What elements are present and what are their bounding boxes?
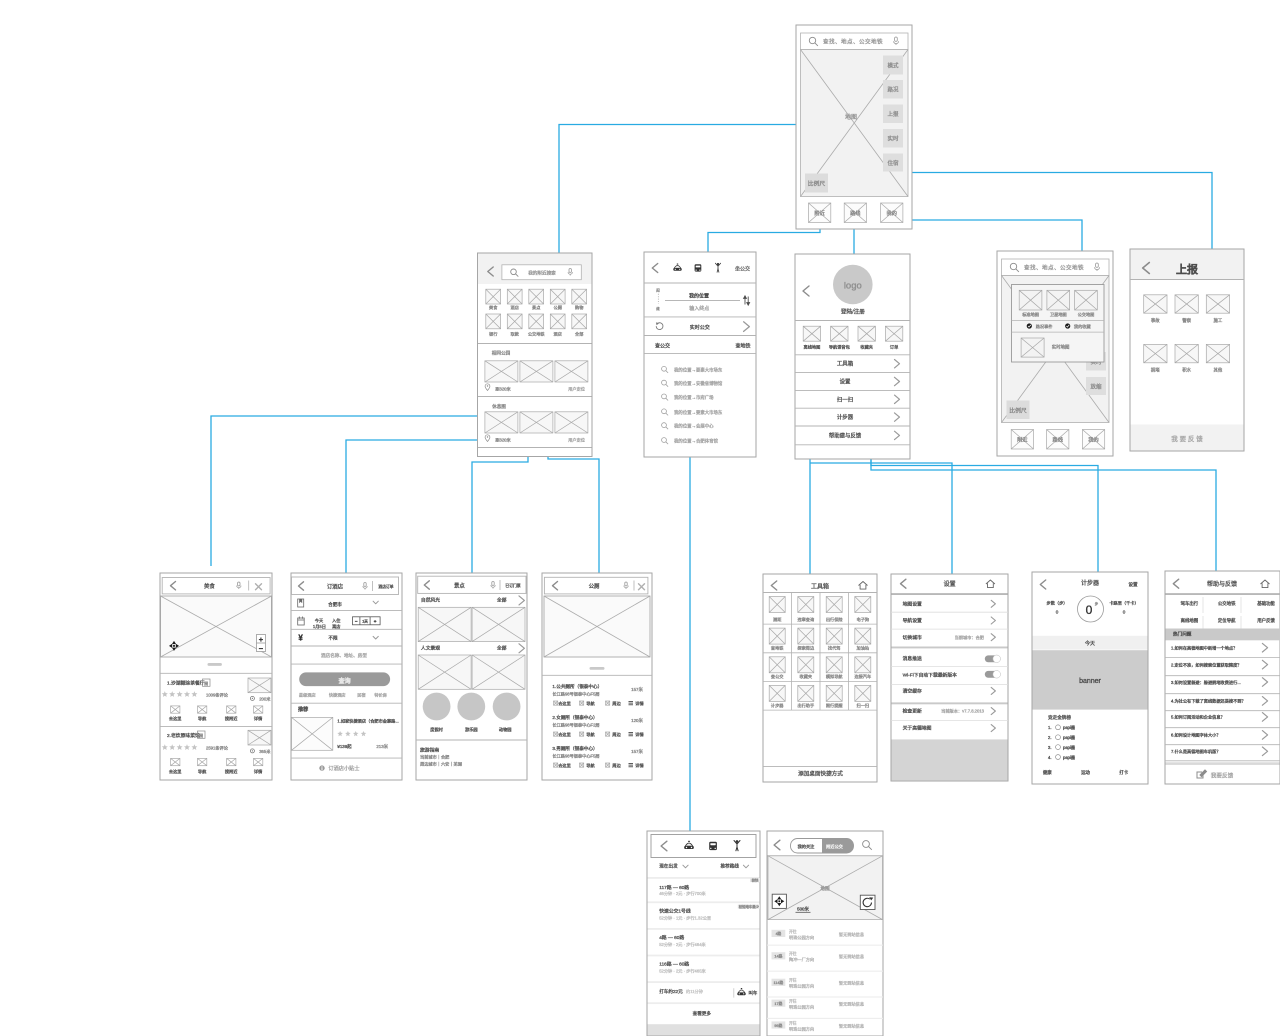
svg-text:213米: 213米: [376, 743, 388, 750]
svg-text:工具箱: 工具箱: [837, 360, 854, 368]
svg-text:我的位置→安徽省博物馆: 我的位置→安徽省博物馆: [674, 380, 723, 387]
svg-text:地图: 地图: [820, 885, 830, 892]
svg-text:路况: 路况: [887, 86, 899, 94]
svg-text:竞走金牌榜: 竞走金牌榜: [1048, 714, 1071, 721]
svg-text:输入终点: 输入终点: [689, 305, 709, 312]
svg-text:人文景观: 人文景观: [421, 644, 440, 651]
svg-text:卫星地图: 卫星地图: [1050, 311, 1067, 318]
svg-text:叫车: 叫车: [749, 990, 758, 997]
svg-text:快速公交1号线: 快速公交1号线: [659, 907, 691, 914]
svg-text:3.如何设置躲避：躲避拥堵收费进行...: 3.如何设置躲避：躲避拥堵收费进行...: [1171, 679, 1241, 686]
svg-text:17路: 17路: [774, 1001, 782, 1006]
svg-text:当前城市：合肥: 当前城市：合肥: [955, 634, 985, 641]
svg-text:放缩: 放缩: [1090, 383, 1102, 391]
svg-text:117路 — 60路: 117路 — 60路: [659, 884, 689, 891]
svg-text:连接汽车: 连接汽车: [854, 673, 871, 680]
svg-text:设置: 设置: [1128, 581, 1138, 588]
svg-text:驾车出行: 驾车出行: [1181, 600, 1199, 607]
svg-text:暂无到站信息: 暂无到站信息: [839, 980, 864, 987]
svg-text:去这里: 去这里: [558, 762, 571, 769]
svg-text:上报: 上报: [887, 110, 899, 118]
svg-text:全部: 全部: [497, 597, 507, 604]
svg-text:周边: 周边: [612, 700, 621, 707]
svg-text:收藏夹: 收藏夹: [860, 343, 873, 350]
svg-text:图: 图: [199, 734, 203, 738]
svg-text:明珠公园方向: 明珠公园方向: [789, 983, 814, 990]
svg-text:周边: 周边: [612, 762, 621, 769]
svg-text:距320米: 距320米: [495, 386, 511, 393]
svg-text:查询: 查询: [338, 677, 351, 685]
svg-text:拥堵: 拥堵: [1151, 367, 1160, 374]
svg-text:检查更新: 检查更新: [903, 708, 922, 715]
svg-text:当前城市｜合肥: 当前城市｜合肥: [420, 754, 450, 761]
svg-text:我的附近搜索: 我的附近搜索: [528, 270, 556, 277]
svg-text:开往: 开往: [789, 951, 797, 956]
svg-text:陶冲—厂方向: 陶冲—厂方向: [789, 956, 814, 963]
svg-text:3.男厕所（银泰中心）: 3.男厕所（银泰中心）: [552, 745, 597, 752]
svg-text:动物园: 动物园: [499, 726, 512, 733]
svg-text:收藏夹: 收藏夹: [800, 673, 813, 680]
svg-text:开往: 开往: [789, 978, 797, 983]
svg-text:实时公交: 实时公交: [690, 324, 710, 331]
svg-text:我的位置→会展中心: 我的位置→会展中心: [674, 423, 714, 430]
svg-text:开往: 开往: [789, 929, 797, 934]
svg-text:查找、地点、公交地铁: 查找、地点、公交地铁: [1024, 264, 1084, 272]
svg-text:订酒店小贴士: 订酒店小贴士: [328, 764, 359, 772]
svg-text:比例尺: 比例尺: [808, 180, 826, 188]
svg-text:5.如何订阅活动和企业信息？: 5.如何订阅活动和企业信息？: [1171, 714, 1225, 721]
svg-text:查看更多: 查看更多: [693, 1010, 712, 1017]
svg-text:用户反馈: 用户反馈: [1257, 617, 1275, 624]
svg-text:施工: 施工: [1214, 317, 1223, 324]
svg-text:特价房: 特价房: [374, 691, 387, 698]
svg-text:4路 — 60路: 4路 — 60路: [659, 934, 684, 941]
svg-text:探索周边: 探索周边: [797, 645, 815, 652]
svg-text:今天: 今天: [315, 617, 324, 624]
svg-text:违章查询: 违章查询: [797, 616, 814, 623]
svg-text:事故: 事故: [1151, 317, 1160, 324]
svg-text:电子狗: 电子狗: [857, 616, 870, 623]
svg-text:导航: 导航: [198, 715, 207, 722]
svg-text:我的位置→市府广场: 我的位置→市府广场: [674, 394, 714, 401]
svg-text:papi酱: papi酱: [1063, 744, 1075, 751]
svg-text:周边城市｜六安｜芜湖: 周边城市｜六安｜芜湖: [420, 761, 462, 768]
svg-text:星级酒店: 星级酒店: [299, 691, 316, 698]
svg-text:全部: 全部: [575, 331, 583, 338]
svg-text:休息图: 休息图: [492, 403, 506, 410]
svg-text:4路: 4路: [775, 931, 781, 936]
svg-text:附近: 附近: [814, 209, 824, 217]
svg-text:暂无到站信息: 暂无到站信息: [839, 1022, 864, 1029]
svg-text:52分钟 · 2元 · 步行464米: 52分钟 · 2元 · 步行464米: [659, 941, 706, 948]
svg-text:查地铁: 查地铁: [771, 645, 784, 652]
svg-text:其他: 其他: [1214, 367, 1223, 374]
svg-text:详情: 详情: [635, 762, 643, 769]
svg-text:上报: 上报: [1176, 262, 1199, 276]
svg-text:酒店: 酒店: [511, 304, 519, 311]
svg-text:购物: 购物: [575, 304, 583, 311]
svg-text:卡路里（千卡）: 卡路里（千卡）: [1109, 600, 1138, 607]
svg-text:基础功能: 基础功能: [1257, 600, 1275, 607]
svg-text:52分钟 · 2元 · 步行465米: 52分钟 · 2元 · 步行465米: [659, 968, 706, 975]
svg-text:papi酱: papi酱: [1063, 754, 1075, 761]
svg-text:1.如何在高德地图中新增一个地点？: 1.如何在高德地图中新增一个地点？: [1171, 645, 1237, 652]
svg-text:美食: 美食: [489, 304, 498, 311]
svg-text:出行助手: 出行助手: [797, 702, 814, 709]
svg-text:暂无到站信息: 暂无到站信息: [839, 1001, 864, 1008]
svg-text:2.老炊原味菜馆: 2.老炊原味菜馆: [167, 732, 200, 739]
svg-text:警察: 警察: [1182, 317, 1191, 324]
svg-text:现在出发: 现在出发: [659, 863, 678, 870]
svg-text:不限: 不限: [328, 635, 338, 642]
svg-text:暂无到站信息: 暂无到站信息: [839, 931, 864, 938]
svg-text:帮助建与反馈: 帮助建与反馈: [829, 431, 862, 439]
svg-text:明珠公园方向: 明珠公园方向: [789, 1025, 814, 1032]
svg-text:酒店订单: 酒店订单: [378, 584, 393, 589]
svg-text:我的关注: 我的关注: [798, 843, 816, 850]
svg-text:搜附近: 搜附近: [225, 715, 238, 722]
svg-text:明珠公园方向: 明珠公园方向: [789, 934, 814, 941]
svg-text:当前版本：v7.7.8.2013: 当前版本：v7.7.8.2013: [941, 708, 984, 715]
svg-text:坐公交: 坐公交: [735, 266, 750, 273]
svg-text:订酒店: 订酒店: [327, 583, 344, 591]
svg-text:实时: 实时: [887, 135, 899, 143]
svg-text:1.沙湖糊涂茶餐厅: 1.沙湖糊涂茶餐厅: [167, 680, 205, 687]
svg-text:银行: 银行: [489, 331, 497, 338]
svg-text:消息推送: 消息推送: [903, 655, 922, 662]
svg-text:logo: logo: [844, 281, 862, 292]
svg-text:终: 终: [656, 306, 660, 311]
svg-text:关于高德地图: 关于高德地图: [903, 725, 932, 732]
svg-text:较快: 较快: [752, 877, 759, 882]
svg-text:99路: 99路: [774, 1023, 782, 1028]
svg-text:长江路98号银泰中心F2层: 长江路98号银泰中心F2层: [552, 722, 599, 729]
svg-text:度假村: 度假村: [430, 726, 443, 733]
svg-text:暂无到站信息: 暂无到站信息: [839, 953, 864, 960]
svg-text:+: +: [374, 619, 377, 624]
svg-text:步数（步）: 步数（步）: [1047, 600, 1068, 607]
svg-text:详情: 详情: [635, 700, 643, 707]
svg-text:景点: 景点: [454, 583, 465, 590]
svg-text:去这里: 去这里: [169, 768, 182, 775]
svg-text:搜附近: 搜附近: [225, 768, 238, 775]
svg-text:积水: 积水: [1182, 367, 1191, 374]
svg-text:添加桌面快捷方式: 添加桌面快捷方式: [798, 770, 843, 778]
svg-text:我的: 我的: [1088, 435, 1098, 443]
svg-text:46分钟 · 2元 · 步行700米: 46分钟 · 2元 · 步行700米: [659, 890, 706, 897]
svg-text:详情: 详情: [635, 731, 643, 738]
svg-text:模式: 模式: [887, 62, 899, 70]
svg-text:详情: 详情: [254, 715, 262, 722]
svg-text:去这里: 去这里: [558, 731, 571, 738]
svg-text:设置: 设置: [944, 580, 956, 588]
svg-text:计步器: 计步器: [771, 702, 784, 709]
svg-text:1009条评论: 1009条评论: [206, 691, 229, 698]
svg-text:酒店: 酒店: [554, 331, 562, 338]
svg-text:实时地图: 实时地图: [1052, 344, 1070, 351]
svg-text:较短堵车最少: 较短堵车最少: [739, 904, 760, 909]
svg-text:扫一扫: 扫一扫: [837, 395, 853, 403]
svg-text:计步器: 计步器: [1081, 579, 1099, 587]
svg-text:出行保险: 出行保险: [826, 616, 844, 623]
svg-text:500米: 500米: [797, 906, 809, 913]
svg-text:游乐园: 游乐园: [465, 726, 478, 733]
svg-text:地图: 地图: [845, 113, 857, 121]
svg-text:公厕: 公厕: [589, 583, 600, 590]
svg-text:365米: 365米: [259, 748, 271, 755]
svg-text:工具箱: 工具箱: [811, 583, 829, 591]
svg-text:开往: 开往: [789, 999, 797, 1004]
svg-text:用户定位: 用户定位: [568, 386, 585, 393]
svg-text:1.如家快捷酒店（合肥市金寨路...: 1.如家快捷酒店（合肥市金寨路...: [337, 717, 398, 724]
svg-text:我的收藏: 我的收藏: [1074, 323, 1092, 330]
svg-text:papi酱: papi酱: [1063, 724, 1075, 731]
svg-text:已订门票: 已订门票: [505, 583, 520, 588]
svg-text:papi酱: papi酱: [1063, 734, 1075, 741]
svg-text:导航: 导航: [586, 762, 595, 769]
svg-text:公交地铁: 公交地铁: [1218, 600, 1236, 607]
svg-text:模拟导航: 模拟导航: [826, 673, 844, 680]
svg-text:住宿: 住宿: [887, 159, 899, 167]
svg-text:公交地图: 公交地图: [1078, 311, 1095, 318]
svg-text:114路: 114路: [773, 980, 783, 985]
svg-text:0: 0: [1123, 610, 1126, 615]
svg-text:我 要 反 馈: 我 要 反 馈: [1171, 434, 1203, 443]
svg-text:路况事件: 路况事件: [1036, 323, 1053, 330]
svg-text:0: 0: [1086, 603, 1093, 617]
svg-text:路线: 路线: [1053, 435, 1063, 443]
svg-text:离线地图: 离线地图: [1181, 617, 1199, 624]
svg-text:开往: 开往: [789, 1020, 797, 1025]
svg-text:详情: 详情: [254, 768, 262, 775]
svg-text:116路 — 60路: 116路 — 60路: [659, 961, 689, 968]
svg-text:相同公园: 相同公园: [492, 350, 511, 357]
svg-text:52分钟 · 1元 · 步行1.32公里: 52分钟 · 1元 · 步行1.32公里: [659, 914, 711, 921]
svg-text:导航: 导航: [586, 731, 595, 738]
svg-text:设置: 设置: [840, 378, 851, 386]
svg-text:比例尺: 比例尺: [1009, 407, 1027, 415]
svg-text:导航: 导航: [198, 768, 207, 775]
svg-text:入住: 入住: [332, 617, 341, 623]
svg-text:打卡: 打卡: [1119, 769, 1128, 776]
svg-text:取款: 取款: [511, 331, 520, 338]
svg-text:清空缓存: 清空缓存: [903, 688, 922, 695]
svg-text:200米: 200米: [259, 695, 271, 702]
svg-text:健康: 健康: [1043, 769, 1052, 776]
svg-text:周边: 周边: [612, 731, 621, 738]
svg-text:7.什么是高德地图车机版？: 7.什么是高德地图车机版？: [1171, 748, 1221, 755]
svg-text:+: +: [259, 635, 264, 644]
svg-text:打车约22元: 打车约22元: [659, 988, 683, 995]
svg-text:1.: 1.: [1048, 725, 1052, 730]
svg-text:我的位置→合肥体育馆: 我的位置→合肥体育馆: [674, 438, 719, 445]
svg-text:Wi-Fi下自动下载最新版本: Wi-Fi下自动下载最新版本: [903, 672, 958, 679]
svg-text:−: −: [355, 619, 358, 624]
svg-text:加油站: 加油站: [857, 645, 870, 652]
svg-text:计步器: 计步器: [837, 413, 854, 421]
svg-text:6.如何设计地图字体大小？: 6.如何设计地图字体大小？: [1171, 732, 1221, 739]
svg-text:起: 起: [656, 288, 660, 293]
svg-text:地图设置: 地图设置: [903, 600, 922, 607]
svg-text:旅游指南: 旅游指南: [420, 746, 439, 753]
svg-text:离线地图: 离线地图: [804, 343, 821, 350]
svg-text:约11分钟: 约11分钟: [686, 988, 703, 995]
svg-text:美食: 美食: [204, 582, 215, 590]
svg-text:−: −: [259, 644, 264, 653]
svg-text:用户定位: 用户定位: [568, 437, 585, 444]
svg-text:帮助与反馈: 帮助与反馈: [1207, 580, 1237, 588]
svg-text:去这里: 去这里: [169, 715, 182, 722]
svg-text:限行提醒: 限行提醒: [826, 702, 844, 709]
svg-text:长江路98号银泰中心F5层: 长江路98号银泰中心F5层: [552, 691, 599, 698]
svg-text:2.定位不准，如何搜索位置获取精度？: 2.定位不准，如何搜索位置获取精度？: [1171, 661, 1242, 668]
svg-text:订单: 订单: [890, 343, 898, 350]
svg-text:合肥市: 合肥市: [328, 601, 342, 608]
svg-text:附近: 附近: [1017, 435, 1027, 443]
svg-text:路线: 路线: [850, 209, 860, 217]
svg-text:运动: 运动: [1081, 769, 1090, 776]
svg-text:4.: 4.: [1048, 755, 1052, 760]
svg-text:图: 图: [204, 682, 208, 686]
svg-text:157米: 157米: [631, 748, 643, 755]
svg-text:查公交: 查公交: [655, 343, 670, 350]
svg-text:14路: 14路: [774, 954, 782, 959]
svg-text:去这里: 去这里: [558, 700, 571, 707]
svg-text:1.公共厕所（银泰中心）: 1.公共厕所（银泰中心）: [552, 683, 602, 690]
svg-text:0: 0: [1056, 610, 1059, 615]
svg-text:120米: 120米: [631, 717, 643, 724]
svg-text:查地铁: 查地铁: [735, 343, 750, 350]
svg-text:我的位置: 我的位置: [689, 292, 709, 299]
svg-text:今天: 今天: [1085, 640, 1095, 647]
svg-text:自然风光: 自然风光: [421, 597, 440, 604]
svg-text:导航: 导航: [586, 700, 595, 707]
svg-text:民宿: 民宿: [357, 691, 365, 698]
svg-text:导航设置: 导航设置: [903, 617, 922, 624]
svg-text:我的位置→要素大市场东: 我的位置→要素大市场东: [674, 409, 723, 416]
svg-text:酒店名称、地址、房型: 酒店名称、地址、房型: [321, 652, 367, 659]
svg-text:定位导航: 定位导航: [1218, 617, 1236, 624]
svg-text:导航语音包: 导航语音包: [829, 343, 851, 350]
svg-text:¥: ¥: [298, 634, 303, 643]
svg-text:标准地图: 标准地图: [1022, 311, 1039, 318]
svg-text:明珠公园方向: 明珠公园方向: [789, 1004, 814, 1011]
svg-text:2591条评论: 2591条评论: [206, 744, 229, 751]
svg-text:快捷酒店: 快捷酒店: [329, 691, 346, 698]
svg-text:距320米: 距320米: [495, 437, 511, 444]
svg-text:2.: 2.: [1048, 735, 1052, 740]
svg-text:扫一扫: 扫一扫: [857, 702, 870, 709]
svg-text:测距: 测距: [773, 616, 781, 623]
svg-text:长江路98号银泰中心F5层: 长江路98号银泰中心F5层: [552, 753, 599, 760]
svg-text:我的: 我的: [887, 209, 897, 217]
svg-text:登陆/注册: 登陆/注册: [841, 308, 865, 316]
svg-text:我的位置→要素大市场东: 我的位置→要素大市场东: [674, 366, 723, 373]
svg-text:157米: 157米: [631, 686, 643, 693]
svg-text:推荐路线: 推荐路线: [721, 863, 740, 870]
svg-text:找代驾: 找代驾: [828, 645, 841, 652]
svg-text:查公交: 查公交: [771, 673, 784, 680]
svg-text:3.: 3.: [1048, 745, 1052, 750]
svg-text:全部: 全部: [497, 644, 507, 651]
svg-text:附近公交: 附近公交: [826, 843, 843, 850]
svg-text:2.女厕所（银泰中心）: 2.女厕所（银泰中心）: [552, 714, 597, 721]
svg-text:热门问题: 热门问题: [1173, 631, 1192, 638]
svg-text:我要反馈: 我要反馈: [1211, 772, 1234, 780]
svg-text:i: i: [321, 766, 322, 771]
svg-text:banner: banner: [1079, 678, 1101, 685]
svg-text:1天: 1天: [362, 620, 368, 624]
svg-text:公交地铁: 公交地铁: [528, 331, 546, 338]
svg-text:推荐: 推荐: [298, 706, 308, 713]
svg-text:切换城市: 切换城市: [903, 634, 922, 641]
svg-text:4.为社公有下载了离线数据还是搜不到？: 4.为社公有下载了离线数据还是搜不到？: [1171, 698, 1246, 705]
svg-text:查找、地点、公交地铁: 查找、地点、公交地铁: [823, 38, 883, 46]
